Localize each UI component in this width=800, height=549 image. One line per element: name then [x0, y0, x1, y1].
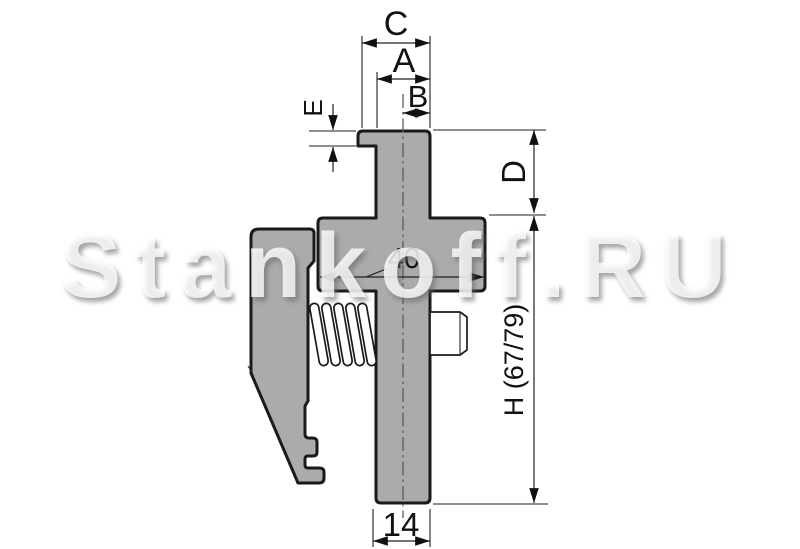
dimension-label-b: B [408, 79, 429, 114]
dimension-14: 14 [373, 506, 430, 547]
technical-drawing: C A B E D [0, 0, 800, 549]
dimension-label-d: D [495, 160, 532, 184]
dimension-e: E [298, 99, 356, 172]
diagram-canvas: C A B E D [0, 0, 800, 549]
dimension-label-a: A [393, 42, 416, 80]
dimension-b: B [403, 79, 430, 114]
dimension-label-h: H (67/79) [499, 304, 529, 417]
dimension-label-14: 14 [383, 506, 420, 543]
dimension-label-c: C [384, 5, 409, 43]
dimension-label-e: E [298, 99, 328, 116]
set-screw-shape [430, 312, 467, 355]
dimension-label-40: 40 [388, 243, 420, 275]
set-screw [430, 312, 467, 355]
clamp-shape [251, 229, 324, 483]
spring [309, 303, 377, 367]
dimension-d: D [433, 130, 546, 215]
